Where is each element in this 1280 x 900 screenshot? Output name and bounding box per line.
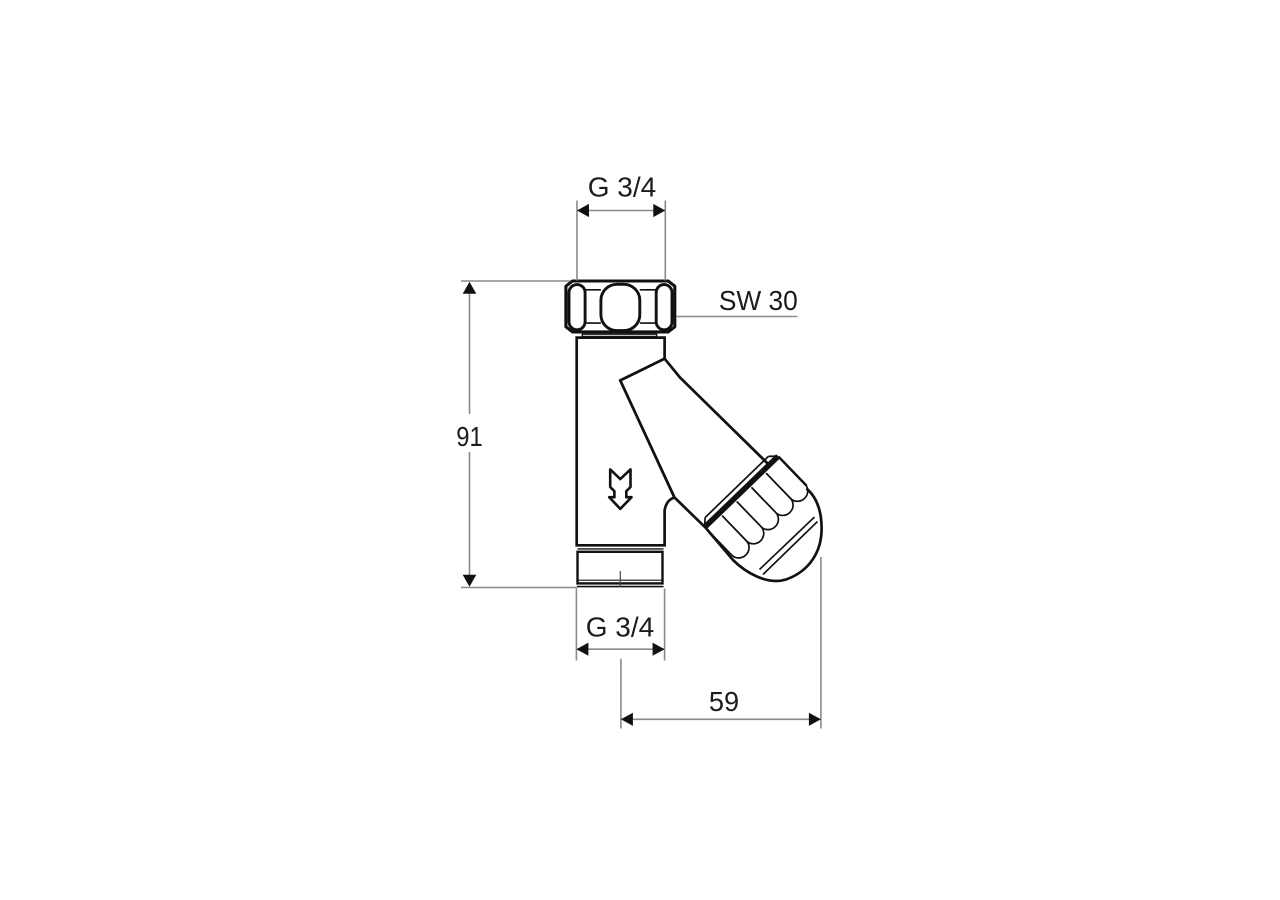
svg-text:G 3/4: G 3/4 [588, 171, 656, 202]
svg-text:SW 30: SW 30 [719, 284, 798, 316]
svg-text:59: 59 [709, 686, 739, 717]
svg-text:G 3/4: G 3/4 [586, 611, 654, 642]
svg-text:91: 91 [456, 420, 482, 452]
